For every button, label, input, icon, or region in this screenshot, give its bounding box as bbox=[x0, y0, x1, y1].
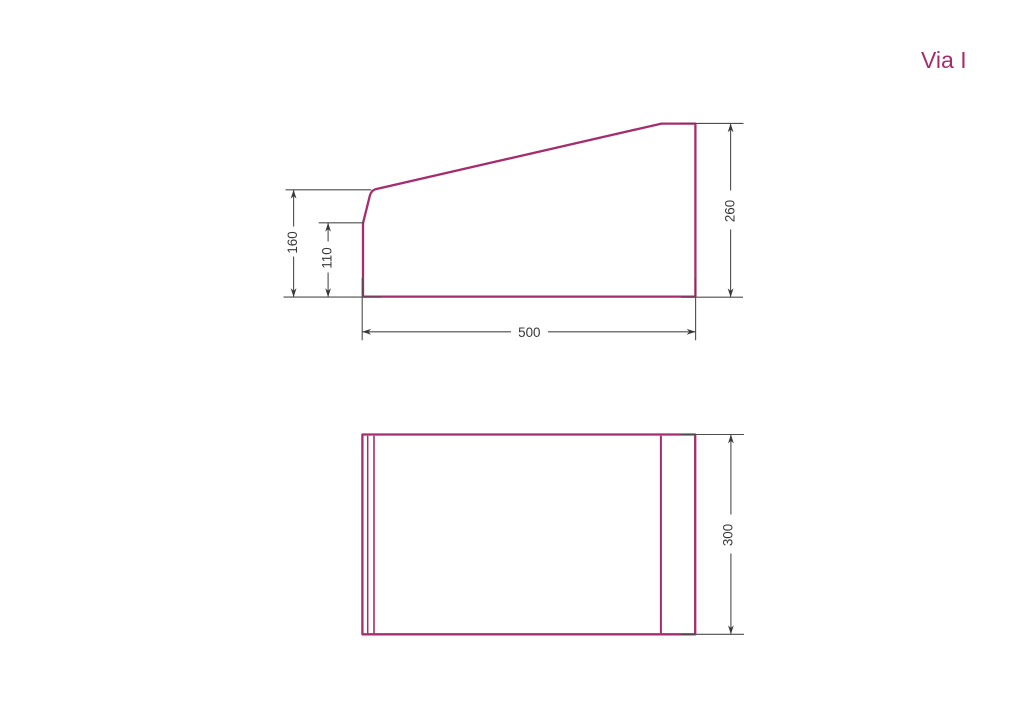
svg-text:160: 160 bbox=[285, 231, 300, 253]
svg-text:500: 500 bbox=[518, 325, 540, 340]
svg-text:110: 110 bbox=[319, 247, 334, 268]
svg-text:Via I: Via I bbox=[921, 47, 967, 73]
svg-text:300: 300 bbox=[721, 524, 736, 546]
svg-text:260: 260 bbox=[722, 200, 737, 222]
